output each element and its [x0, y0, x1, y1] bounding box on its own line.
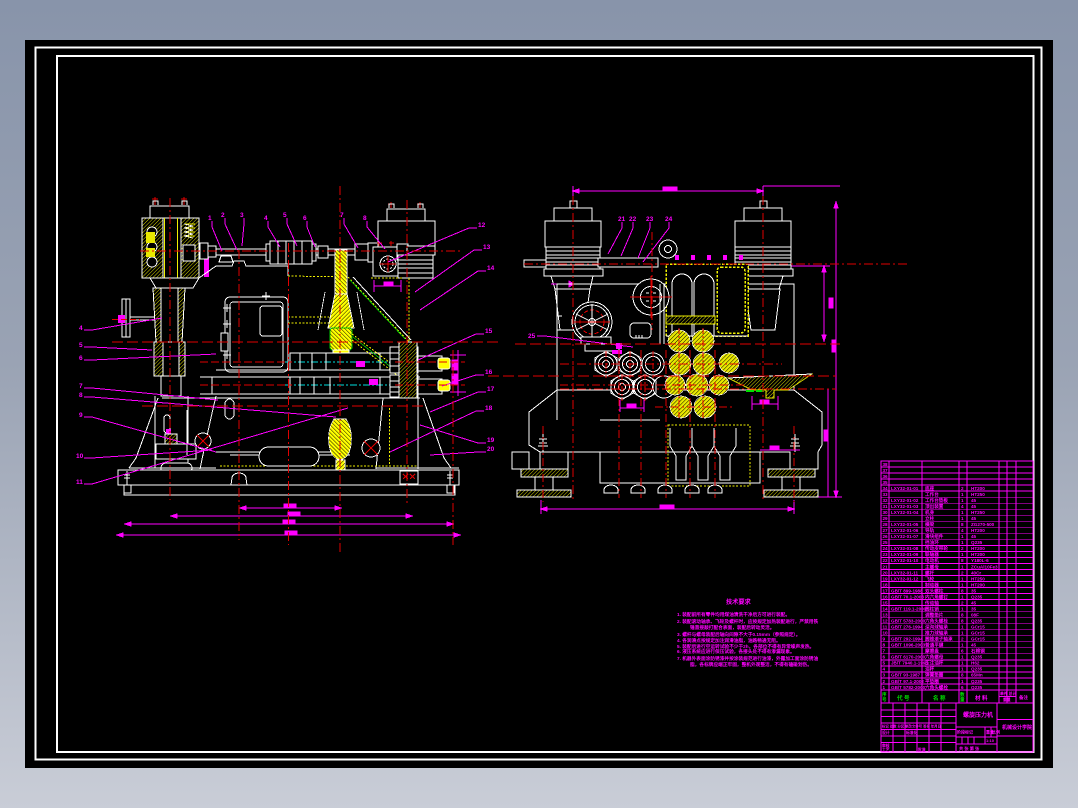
svg-text:摩擦盘: 摩擦盘 [925, 648, 939, 655]
svg-text:22: 22 [883, 558, 889, 563]
svg-text:37: 37 [883, 468, 889, 473]
svg-text:GB/T 5783-2000: GB/T 5783-2000 [891, 619, 926, 624]
svg-text:量: 量 [960, 696, 965, 703]
svg-text:1: 1 [961, 534, 964, 539]
svg-text:滑块组件: 滑块组件 [925, 533, 944, 540]
svg-text:GB/T 292-1994: GB/T 292-1994 [891, 637, 923, 642]
svg-text:40Cr: 40Cr [971, 570, 981, 575]
svg-text:1: 1 [961, 667, 964, 672]
svg-text:8: 8 [79, 392, 83, 399]
svg-text:26: 26 [883, 534, 889, 539]
svg-text:1: 1 [961, 582, 964, 587]
svg-text:ZCuAl10Fe3: ZCuAl10Fe3 [971, 564, 998, 569]
svg-text:7. 机器外表面涂防锈漆并按涂装规范进行油漆，外露加工面涂防: 7. 机器外表面涂防锈漆并按涂装规范进行油漆，外露加工面涂防锈油 [677, 655, 818, 662]
svg-text:GCr15: GCr15 [971, 631, 985, 636]
svg-text:25: 25 [528, 333, 536, 340]
svg-text:1: 1 [961, 492, 964, 497]
svg-text:HT200: HT200 [971, 546, 985, 551]
svg-text:38: 38 [883, 462, 889, 467]
svg-text:8: 8 [961, 522, 964, 527]
svg-text:1: 1 [961, 643, 964, 648]
svg-text:HT200: HT200 [971, 528, 985, 533]
svg-text:19: 19 [883, 576, 889, 581]
svg-text:08F: 08F [971, 613, 979, 618]
svg-text:1: 1 [208, 215, 212, 222]
svg-text:Q235: Q235 [971, 685, 983, 690]
svg-text:29: 29 [883, 516, 889, 521]
svg-text:圆锥滚子轴承: 圆锥滚子轴承 [925, 636, 953, 643]
svg-text:7: 7 [79, 383, 83, 390]
svg-text:1: 1 [961, 540, 964, 545]
svg-text:21: 21 [883, 564, 889, 569]
svg-text:35: 35 [971, 588, 977, 593]
svg-text:HT200: HT200 [971, 552, 985, 557]
svg-text:立柱: 立柱 [925, 515, 935, 522]
svg-text:8: 8 [961, 588, 964, 593]
svg-text:4: 4 [79, 325, 83, 332]
svg-text:9: 9 [883, 637, 886, 642]
svg-text:13: 13 [483, 244, 491, 251]
svg-text:12: 12 [883, 619, 889, 624]
svg-text:GB/T 6170-2000: GB/T 6170-2000 [891, 655, 926, 660]
svg-text:技术要求: 技术要求 [726, 598, 752, 606]
svg-text:材 料: 材 料 [975, 694, 988, 702]
svg-text:比例: 比例 [992, 729, 1000, 735]
svg-text:2: 2 [221, 212, 225, 219]
svg-text:11: 11 [883, 625, 888, 630]
svg-text:6: 6 [303, 215, 307, 222]
svg-text:1: 1 [961, 510, 964, 515]
svg-text:2: 2 [961, 637, 964, 642]
svg-text:24: 24 [883, 546, 889, 551]
svg-text:3: 3 [883, 673, 886, 678]
svg-text:制动器: 制动器 [925, 581, 939, 588]
svg-text:双头螺柱: 双头螺柱 [925, 587, 944, 594]
svg-text:21: 21 [618, 216, 626, 223]
svg-text:11: 11 [76, 479, 83, 486]
svg-text:1: 1 [961, 552, 964, 557]
svg-text:石棉铜: 石棉铜 [970, 648, 985, 655]
svg-text:GCr15: GCr15 [971, 637, 985, 642]
svg-text:LXY32-01-09: LXY32-01-09 [891, 552, 919, 557]
svg-text:25: 25 [883, 540, 889, 545]
svg-text:17: 17 [487, 386, 495, 393]
svg-text:工艺: 工艺 [882, 747, 890, 752]
svg-text:LXY32-01-11: LXY32-01-11 [891, 570, 919, 575]
svg-text:Q235: Q235 [971, 540, 983, 545]
svg-text:6: 6 [79, 355, 83, 362]
svg-text:导轨: 导轨 [925, 527, 935, 534]
svg-text:联轴器: 联轴器 [925, 551, 939, 558]
svg-text:1:10: 1:10 [986, 738, 995, 743]
svg-text:调整垫片: 调整垫片 [925, 612, 944, 619]
svg-text:18: 18 [485, 405, 493, 412]
svg-text:1. 装配前所有零件均用煤油清洗干净后方可进行装配。: 1. 装配前所有零件均用煤油清洗干净后方可进行装配。 [677, 611, 790, 618]
svg-text:H62: H62 [971, 661, 980, 666]
svg-text:14: 14 [487, 265, 495, 272]
svg-text:LXY32-01-04: LXY32-01-04 [891, 510, 919, 515]
svg-text:17: 17 [883, 588, 889, 593]
svg-text:LXY32-01-01: LXY32-01-01 [891, 486, 919, 491]
svg-text:28: 28 [883, 522, 889, 527]
svg-text:GB/T 70.1-2008: GB/T 70.1-2008 [891, 594, 924, 599]
svg-text:GB/T 1096-2003: GB/T 1096-2003 [891, 643, 926, 648]
svg-text:23: 23 [646, 216, 654, 223]
svg-text:阶段标记: 阶段标记 [957, 729, 973, 735]
svg-text:批准: 批准 [918, 747, 926, 752]
svg-text:45: 45 [971, 643, 977, 648]
svg-text:45: 45 [971, 534, 977, 539]
svg-text:机械设计学院: 机械设计学院 [1001, 724, 1032, 731]
svg-text:4. 各润滑点按规定加注润滑油脂，油路畅通无阻。: 4. 各润滑点按规定加注润滑油脂，油路畅通无阻。 [677, 637, 781, 644]
svg-text:2: 2 [961, 570, 964, 575]
svg-text:ZG270-500: ZG270-500 [971, 522, 995, 527]
svg-text:9: 9 [79, 412, 83, 419]
svg-text:10: 10 [76, 453, 84, 460]
svg-text:LXY32-01-08: LXY32-01-08 [891, 546, 919, 551]
svg-text:8: 8 [961, 673, 964, 678]
svg-text:10: 10 [883, 631, 889, 636]
svg-text:顶出装置: 顶出装置 [925, 503, 944, 510]
svg-text:16: 16 [485, 369, 493, 376]
svg-text:35: 35 [971, 607, 977, 612]
svg-text:30: 30 [883, 510, 889, 515]
svg-text:GB/T 276-1994: GB/T 276-1994 [891, 625, 923, 630]
svg-text:螺杆: 螺杆 [925, 569, 935, 576]
svg-text:重量: 重量 [1003, 697, 1011, 702]
svg-text:20: 20 [883, 570, 889, 575]
svg-text:22: 22 [629, 216, 637, 223]
svg-text:单件 总计: 单件 总计 [1000, 691, 1016, 696]
svg-text:名 称: 名 称 [933, 694, 946, 702]
svg-text:六角头螺栓: 六角头螺栓 [925, 618, 948, 625]
svg-text:底座: 底座 [925, 485, 935, 492]
svg-text:19: 19 [487, 437, 495, 444]
svg-text:标准化: 标准化 [905, 730, 918, 735]
svg-text:机身: 机身 [925, 509, 935, 516]
svg-text:1: 1 [961, 661, 964, 666]
svg-text:6. 液压系统应进行保压试验，各接头处不得有渗漏现象。: 6. 液压系统应进行保压试验，各接头处不得有渗漏现象。 [677, 648, 795, 655]
svg-text:33: 33 [883, 492, 889, 497]
svg-text:45: 45 [971, 516, 977, 521]
svg-text:4: 4 [883, 667, 886, 672]
svg-text:Q235: Q235 [971, 655, 983, 660]
svg-text:LXY32-01-03: LXY32-01-03 [891, 504, 919, 509]
svg-text:18: 18 [883, 582, 889, 587]
svg-text:36: 36 [883, 474, 889, 479]
svg-text:2: 2 [883, 679, 886, 684]
svg-text:16: 16 [883, 594, 889, 599]
svg-text:6: 6 [961, 685, 964, 690]
svg-text:HT200: HT200 [971, 486, 985, 491]
svg-text:螺旋压力机: 螺旋压力机 [963, 711, 993, 719]
svg-text:1: 1 [961, 516, 964, 521]
svg-text:号: 号 [882, 696, 887, 703]
svg-text:3. 螺杆与螺母装配后轴向间隙不大于0.15mm（参照规定）: 3. 螺杆与螺母装配后轴向间隙不大于0.15mm（参照规定）。 [677, 631, 800, 638]
svg-text:HT250: HT250 [971, 492, 985, 497]
svg-text:内六角螺钉: 内六角螺钉 [925, 593, 948, 600]
svg-text:GB/T 899-1988: GB/T 899-1988 [891, 588, 923, 593]
svg-text:32: 32 [883, 498, 889, 503]
svg-text:1: 1 [961, 576, 964, 581]
svg-text:1: 1 [961, 594, 964, 599]
svg-text:LXY32-01-07: LXY32-01-07 [891, 534, 919, 539]
svg-text:六角螺母: 六角螺母 [925, 654, 944, 661]
svg-text:挡油环: 挡油环 [925, 539, 939, 546]
svg-text:45: 45 [971, 504, 977, 509]
svg-text:HT200: HT200 [971, 582, 985, 587]
svg-text:7: 7 [883, 649, 886, 654]
svg-text:20: 20 [487, 446, 495, 453]
svg-text:65Mn: 65Mn [971, 673, 983, 678]
svg-text:45: 45 [971, 498, 977, 503]
svg-text:Y180L-6: Y180L-6 [971, 558, 989, 563]
svg-text:代 号: 代 号 [896, 694, 910, 702]
svg-text:传动轴: 传动轴 [924, 599, 939, 606]
svg-text:6: 6 [883, 655, 886, 660]
svg-text:HT250: HT250 [971, 510, 985, 515]
svg-text:备注: 备注 [1018, 694, 1028, 701]
svg-text:脂，各标牌应端正牢固，整机外观整洁，不得有磕碰划伤。: 脂，各标牌应端正牢固，整机外观整洁，不得有磕碰划伤。 [690, 661, 812, 668]
svg-text:GB/T 93-1987: GB/T 93-1987 [891, 673, 921, 678]
svg-text:工作台垫板: 工作台垫板 [925, 497, 948, 504]
svg-text:Q235: Q235 [971, 667, 983, 672]
svg-text:Q235: Q235 [971, 594, 983, 599]
svg-text:深沟球轴承: 深沟球轴承 [925, 624, 948, 631]
svg-text:1: 1 [961, 631, 964, 636]
svg-text:压注油杯: 压注油杯 [925, 660, 944, 667]
svg-text:JB/T 7940.1-1995: JB/T 7940.1-1995 [891, 661, 928, 666]
svg-text:HT250: HT250 [971, 576, 985, 581]
svg-text:24: 24 [665, 216, 673, 223]
svg-text:6: 6 [961, 649, 964, 654]
svg-text:27: 27 [883, 528, 889, 533]
svg-text:推力球轴承: 推力球轴承 [925, 630, 948, 637]
svg-text:GCr15: GCr15 [971, 625, 985, 630]
svg-text:普通平键: 普通平键 [925, 642, 944, 649]
svg-text:8: 8 [883, 643, 886, 648]
svg-text:电动机: 电动机 [925, 557, 939, 564]
svg-text:4: 4 [961, 528, 964, 533]
svg-text:油杯: 油杯 [925, 666, 935, 673]
svg-text:Q235: Q235 [971, 679, 983, 684]
svg-text:14: 14 [883, 607, 889, 612]
svg-text:飞轮: 飞轮 [925, 575, 935, 582]
svg-text:标记 处数 分区 更改文件号 签名 年月日: 标记 处数 分区 更改文件号 签名 年月日 [881, 724, 941, 729]
svg-text:设计: 设计 [882, 730, 890, 735]
svg-text:1: 1 [883, 685, 886, 690]
svg-text:LXY32-01-12: LXY32-01-12 [891, 576, 919, 581]
svg-text:12: 12 [478, 222, 486, 229]
svg-text:Q235: Q235 [971, 619, 983, 624]
svg-text:8: 8 [961, 558, 964, 563]
svg-text:主螺母: 主螺母 [925, 563, 939, 570]
svg-text:GB/T 5782-2000: GB/T 5782-2000 [891, 685, 926, 690]
svg-text:共 张 第 张: 共 张 第 张 [959, 745, 980, 752]
svg-text:1: 1 [961, 498, 964, 503]
svg-text:45: 45 [971, 600, 977, 605]
svg-text:GB/T 97.1-2002: GB/T 97.1-2002 [891, 679, 924, 684]
svg-text:34: 34 [883, 486, 889, 491]
svg-text:5: 5 [283, 212, 287, 219]
svg-text:LXY32-01-05: LXY32-01-05 [891, 522, 919, 527]
svg-text:锤直接敲打配合表面，装配后转动灵活。: 锤直接敲打配合表面，装配后转动灵活。 [690, 624, 774, 631]
svg-text:8: 8 [961, 613, 964, 618]
svg-text:8: 8 [363, 215, 367, 222]
svg-text:圆柱销: 圆柱销 [925, 606, 939, 613]
svg-text:15: 15 [485, 328, 493, 335]
svg-text:2: 2 [961, 546, 964, 551]
svg-text:1: 1 [961, 607, 964, 612]
svg-text:工作台: 工作台 [925, 491, 939, 498]
svg-text:4: 4 [961, 504, 964, 509]
svg-text:15: 15 [883, 600, 889, 605]
svg-text:LXY32-01-06: LXY32-01-06 [891, 528, 919, 533]
svg-text:31: 31 [883, 504, 889, 509]
svg-text:1: 1 [961, 655, 964, 660]
svg-text:5: 5 [79, 342, 83, 349]
svg-text:4: 4 [264, 215, 268, 222]
svg-text:LXY32-01-10: LXY32-01-10 [891, 558, 919, 563]
svg-text:1: 1 [961, 679, 964, 684]
svg-text:2: 2 [961, 600, 964, 605]
svg-text:传动皮带轮: 传动皮带轮 [924, 545, 948, 552]
svg-text:1: 1 [961, 625, 964, 630]
svg-text:3: 3 [240, 212, 244, 219]
svg-text:1: 1 [961, 564, 964, 569]
svg-text:2. 装配滚动轴承、飞轮及螺杆时，应按规定加热装配进行，严禁: 2. 装配滚动轴承、飞轮及螺杆时，应按规定加热装配进行，严禁用铁 [677, 618, 818, 625]
svg-text:5: 5 [883, 661, 886, 666]
svg-text:2: 2 [961, 486, 964, 491]
svg-text:7: 7 [340, 212, 344, 219]
svg-text:35: 35 [883, 480, 889, 485]
svg-text:横梁: 横梁 [924, 521, 935, 528]
svg-text:GB/T 119.1-2000: GB/T 119.1-2000 [891, 607, 927, 612]
svg-text:LXY32-01-02: LXY32-01-02 [891, 498, 919, 503]
svg-text:13: 13 [883, 613, 889, 618]
svg-text:平垫圈: 平垫圈 [925, 678, 939, 685]
svg-text:弹簧垫圈: 弹簧垫圈 [925, 672, 944, 679]
svg-text:23: 23 [883, 552, 889, 557]
svg-text:8: 8 [961, 619, 964, 624]
